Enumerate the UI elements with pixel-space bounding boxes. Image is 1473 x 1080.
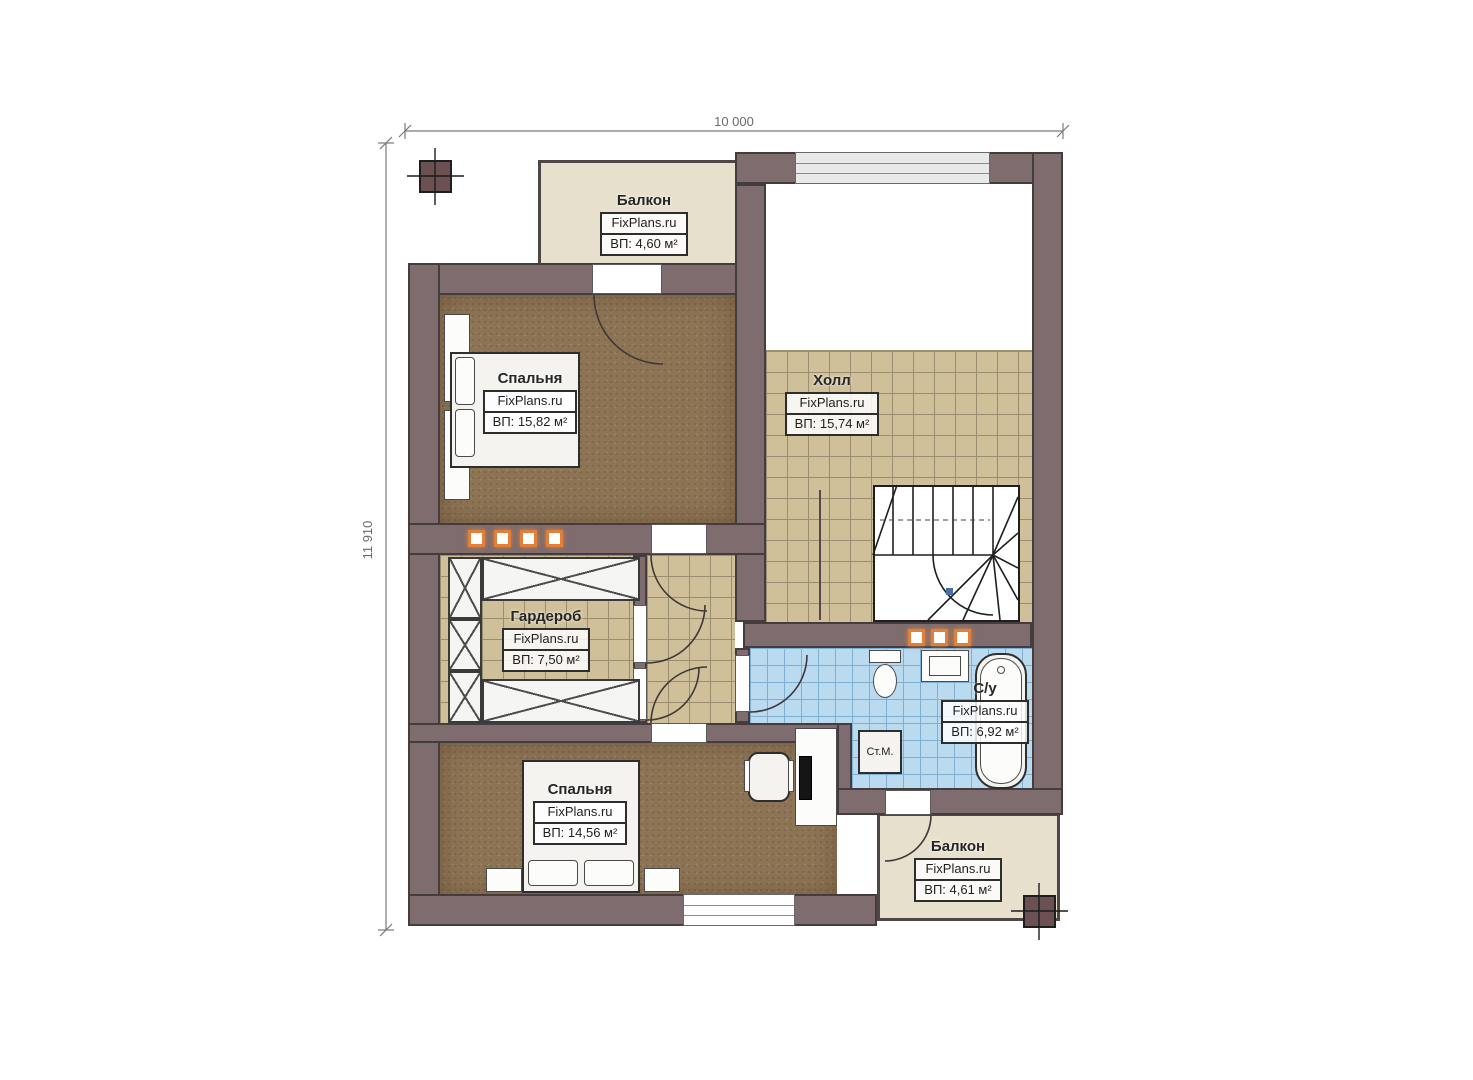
room-info-box: FixPlans.ru ВП: 4,61 м² [914, 858, 1001, 902]
watermark: FixPlans.ru [535, 803, 626, 824]
room-label-balcony-top: Балкон FixPlans.ru ВП: 4,60 м² [583, 192, 705, 256]
wall-light-7 [954, 629, 971, 646]
dimension-width-label: 10 000 [714, 114, 754, 129]
toilet-tank-symbol [869, 650, 901, 663]
door-wardrobe-1 [633, 605, 647, 663]
watermark: FixPlans.ru [916, 860, 999, 881]
wardrobe-cabinet [448, 671, 482, 723]
room-area: ВП: 4,60 м² [602, 235, 685, 254]
door-bathroom [735, 655, 750, 712]
toilet-bowl-symbol [873, 664, 897, 698]
room-info-box: FixPlans.ru ВП: 4,60 м² [600, 212, 687, 256]
floor-plan: Ст.М. [0, 0, 1473, 1080]
wall-bedroom-top-bottom [408, 523, 766, 555]
chair-armrest-symbol [744, 760, 750, 792]
wall-right [1032, 152, 1063, 815]
dimension-label-bg [704, 114, 766, 129]
sink-basin-symbol [929, 656, 961, 676]
wall-light-4 [546, 530, 563, 547]
wardrobe-cabinet [448, 619, 482, 671]
room-label-balcony-bottom: Балкон FixPlans.ru ВП: 4,61 м² [896, 838, 1020, 902]
wall-bathroom-top [743, 622, 1032, 648]
room-area: ВП: 14,56 м² [535, 824, 626, 843]
room-info-box: FixPlans.ru ВП: 15,74 м² [785, 392, 880, 436]
room-area: ВП: 6,92 м² [943, 723, 1026, 742]
room-info-box: FixPlans.ru ВП: 15,82 м² [483, 390, 578, 434]
window-bottom [683, 894, 795, 926]
wall-bottom [408, 894, 877, 926]
room-info-box: FixPlans.ru ВП: 7,50 м² [502, 628, 589, 672]
wall-bedrooms-right [735, 184, 766, 622]
room-name: С/у [938, 680, 1032, 697]
wardrobe-cabinet [482, 557, 640, 601]
chair-armrest-symbol [788, 760, 794, 792]
wall-bathroom-bottom [837, 788, 1063, 815]
room-area: ВП: 15,74 м² [787, 415, 878, 434]
door-balcony-top [592, 264, 662, 294]
room-name: Балкон [583, 192, 705, 209]
room-area: ВП: 4,61 м² [916, 881, 999, 900]
monitor-symbol [799, 756, 812, 800]
room-area: ВП: 15,82 м² [485, 413, 576, 432]
wall-top-left [408, 263, 766, 295]
watermark: FixPlans.ru [504, 630, 587, 651]
watermark: FixPlans.ru [943, 702, 1026, 723]
room-info-box: FixPlans.ru ВП: 6,92 м² [941, 700, 1028, 744]
wall-light-2 [494, 530, 511, 547]
room-info-box: FixPlans.ru ВП: 14,56 м² [533, 801, 628, 845]
room-label-wardrobe: Гардероб FixPlans.ru ВП: 7,50 м² [484, 608, 608, 672]
room-label-bedroom-top: Спальня FixPlans.ru ВП: 15,82 м² [468, 370, 592, 434]
corridor-floor [647, 555, 735, 723]
nightstand-symbol [486, 868, 522, 892]
wall-light-6 [931, 629, 948, 646]
door-balcony-bottom [885, 790, 931, 815]
washing-machine-label: Ст.М. [866, 746, 893, 758]
room-name: Холл [776, 372, 888, 389]
column-bottom-right [1023, 895, 1056, 928]
room-name: Спальня [468, 370, 592, 387]
room-label-hall: Холл FixPlans.ru ВП: 15,74 м² [776, 372, 888, 436]
wardrobe-cabinet [448, 557, 482, 619]
watermark: FixPlans.ru [787, 394, 878, 415]
wall-light-3 [520, 530, 537, 547]
wall-light-1 [468, 530, 485, 547]
room-name: Спальня [518, 781, 642, 798]
wall-left [408, 263, 440, 926]
washing-machine-symbol: Ст.М. [858, 730, 902, 774]
door-bedroom-top [651, 524, 707, 554]
pillow-symbol [584, 860, 634, 886]
dimension-height-label: 11 910 [360, 521, 375, 560]
column-top-left [419, 160, 452, 193]
room-label-bathroom: С/у FixPlans.ru ВП: 6,92 м² [938, 680, 1032, 744]
wall-light-5 [908, 629, 925, 646]
office-chair-symbol [748, 752, 790, 802]
room-label-bedroom-bottom: Спальня FixPlans.ru ВП: 14,56 м² [518, 781, 642, 845]
window-top [795, 152, 990, 184]
room-name: Балкон [896, 838, 1020, 855]
wall-bedroom-bottom-top [408, 723, 852, 743]
bathtub-drain-symbol [997, 666, 1005, 674]
nightstand-symbol [644, 868, 680, 892]
watermark: FixPlans.ru [485, 392, 576, 413]
pillow-symbol [528, 860, 578, 886]
door-bedroom-bottom [651, 723, 707, 743]
wardrobe-cabinet [482, 679, 640, 723]
staircase [873, 485, 1020, 622]
room-name: Гардероб [484, 608, 608, 625]
room-area: ВП: 7,50 м² [504, 651, 587, 670]
watermark: FixPlans.ru [602, 214, 685, 235]
